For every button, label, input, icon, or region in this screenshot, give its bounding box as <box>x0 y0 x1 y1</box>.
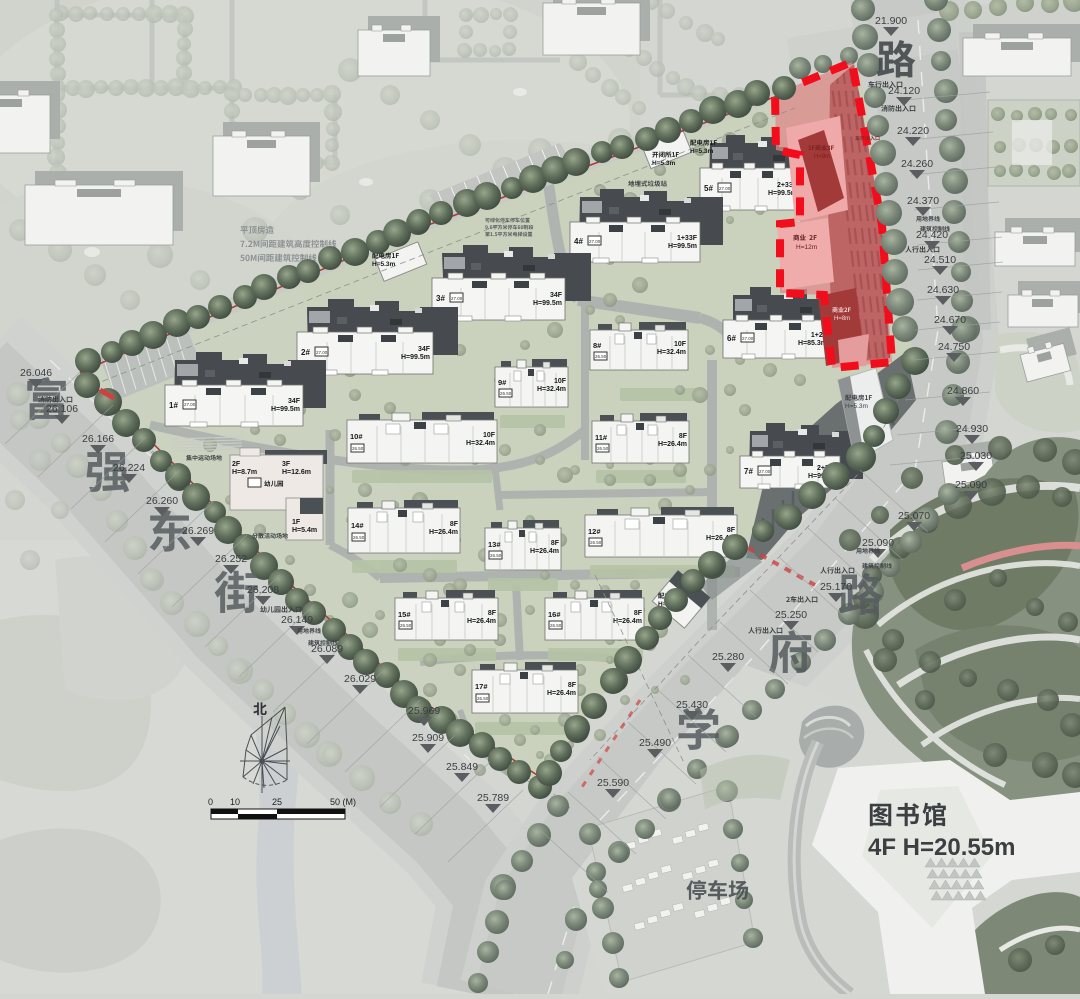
svg-text:25.090: 25.090 <box>862 537 894 549</box>
svg-text:12#: 12# <box>588 527 601 536</box>
svg-text:8#: 8# <box>593 341 602 350</box>
svg-text:25.250: 25.250 <box>775 609 807 621</box>
svg-text:4#: 4# <box>574 237 583 246</box>
svg-text:25.070: 25.070 <box>898 510 930 522</box>
svg-text:27.00: 27.00 <box>719 186 731 191</box>
svg-text:H=26.4m: H=26.4m <box>429 529 458 536</box>
svg-text:10F: 10F <box>554 378 567 385</box>
svg-text:13#: 13# <box>488 540 501 549</box>
svg-text:25.969: 25.969 <box>408 705 440 717</box>
svg-text:25.789: 25.789 <box>477 792 509 804</box>
svg-text:24.860: 24.860 <box>947 385 979 397</box>
svg-text:24.120: 24.120 <box>888 85 920 97</box>
svg-text:8F: 8F <box>551 540 560 547</box>
svg-text:25.590: 25.590 <box>597 777 629 789</box>
svg-text:24.670: 24.670 <box>934 314 966 326</box>
svg-text:26.50: 26.50 <box>400 623 412 628</box>
svg-text:6#: 6# <box>727 334 736 343</box>
svg-text:7#: 7# <box>744 467 753 476</box>
svg-text:25.430: 25.430 <box>676 699 708 711</box>
svg-text:3F: 3F <box>282 461 291 468</box>
svg-text:1#: 1# <box>169 401 178 410</box>
svg-text:24.930: 24.930 <box>956 423 988 435</box>
svg-text:25: 25 <box>272 797 282 807</box>
svg-text:8F: 8F <box>727 527 736 534</box>
svg-text:8F: 8F <box>568 682 577 689</box>
svg-text:10F: 10F <box>483 432 496 439</box>
svg-text:26.50: 26.50 <box>590 540 602 545</box>
svg-text:8F: 8F <box>450 521 459 528</box>
svg-text:16#: 16# <box>548 610 561 619</box>
svg-text:26.50: 26.50 <box>490 553 502 558</box>
svg-text:34F: 34F <box>288 398 301 405</box>
svg-text:14#: 14# <box>351 521 364 530</box>
svg-text:27.00: 27.00 <box>184 402 196 407</box>
svg-text:H=26.4m: H=26.4m <box>547 690 576 697</box>
svg-text:26.50: 26.50 <box>352 446 364 451</box>
svg-text:2#: 2# <box>301 348 310 357</box>
svg-text:H=12m: H=12m <box>796 244 817 251</box>
svg-text:H=5.3m: H=5.3m <box>652 160 676 167</box>
svg-text:H=5.3m: H=5.3m <box>690 148 714 155</box>
svg-text:26.106: 26.106 <box>46 403 78 415</box>
svg-text:9#: 9# <box>498 378 507 387</box>
svg-text:H=12.6m: H=12.6m <box>282 469 311 476</box>
svg-text:24.510: 24.510 <box>924 254 956 266</box>
svg-text:10#: 10# <box>350 432 363 441</box>
svg-text:8F: 8F <box>679 433 688 440</box>
svg-text:17#: 17# <box>475 682 488 691</box>
svg-text:H=8m: H=8m <box>834 316 850 322</box>
svg-text:26.50: 26.50 <box>500 391 512 396</box>
svg-text:26.046: 26.046 <box>20 367 52 379</box>
svg-text:24.630: 24.630 <box>927 284 959 296</box>
svg-text:24.370: 24.370 <box>907 195 939 207</box>
svg-text:26.260: 26.260 <box>146 495 178 507</box>
svg-text:34F: 34F <box>550 292 563 299</box>
svg-text:H=8.7m: H=8.7m <box>232 469 257 476</box>
svg-text:25.490: 25.490 <box>639 737 671 749</box>
svg-text:27.00: 27.00 <box>451 296 463 301</box>
svg-text:H=99.5m: H=99.5m <box>401 354 430 361</box>
svg-text:24.220: 24.220 <box>897 125 929 137</box>
svg-text:24.260: 24.260 <box>901 158 933 170</box>
svg-text:34F: 34F <box>418 346 431 353</box>
svg-text:26.50: 26.50 <box>597 446 609 451</box>
svg-text:H=32.4m: H=32.4m <box>537 386 566 393</box>
svg-text:26.252: 26.252 <box>215 553 247 565</box>
svg-text:26.269: 26.269 <box>182 525 214 537</box>
svg-text:2F: 2F <box>232 461 241 468</box>
svg-text:H=5.4m: H=5.4m <box>292 527 317 534</box>
svg-text:3#: 3# <box>436 294 445 303</box>
svg-text:26.50: 26.50 <box>550 623 562 628</box>
svg-text:H=99.5m: H=99.5m <box>533 300 562 307</box>
svg-text:H=32.4m: H=32.4m <box>657 349 686 356</box>
svg-text:26.208: 26.208 <box>247 584 279 596</box>
svg-text:10: 10 <box>230 797 240 807</box>
svg-text:27.00: 27.00 <box>316 350 328 355</box>
svg-text:26.224: 26.224 <box>113 462 145 474</box>
svg-text:1F: 1F <box>292 519 301 526</box>
svg-text:26.50: 26.50 <box>353 535 365 540</box>
svg-text:H=32.4m: H=32.4m <box>466 440 495 447</box>
svg-text:27.00: 27.00 <box>742 336 754 341</box>
svg-text:25.170: 25.170 <box>820 581 852 593</box>
svg-text:25.030: 25.030 <box>960 450 992 462</box>
svg-text:26.166: 26.166 <box>82 433 114 445</box>
svg-text:5#: 5# <box>704 184 713 193</box>
svg-text:27.00: 27.00 <box>589 239 601 244</box>
svg-text:4F H=20.55m: 4F H=20.55m <box>868 834 1015 861</box>
svg-text:H=99.5m: H=99.5m <box>271 406 300 413</box>
svg-text:24.750: 24.750 <box>938 341 970 353</box>
svg-text:H=26.4m: H=26.4m <box>658 441 687 448</box>
svg-text:27.00: 27.00 <box>759 469 771 474</box>
svg-text:25.090: 25.090 <box>955 479 987 491</box>
svg-text:25.909: 25.909 <box>412 732 444 744</box>
svg-text:10F: 10F <box>674 341 687 348</box>
svg-text:8F: 8F <box>488 610 497 617</box>
svg-text:H=5.3m: H=5.3m <box>845 403 868 410</box>
svg-text:26.029: 26.029 <box>344 673 376 685</box>
svg-text:26.50: 26.50 <box>477 696 489 701</box>
svg-text:25.280: 25.280 <box>712 651 744 663</box>
svg-text:26.089: 26.089 <box>311 643 343 655</box>
svg-text:H=26.4m: H=26.4m <box>467 618 496 625</box>
svg-text:1+33F: 1+33F <box>677 235 698 242</box>
svg-text:H=26.4m: H=26.4m <box>530 548 559 555</box>
svg-text:26.149: 26.149 <box>281 614 313 626</box>
svg-text:15#: 15# <box>398 610 411 619</box>
svg-text:H=85.3m: H=85.3m <box>798 340 827 347</box>
svg-text:8F: 8F <box>634 610 643 617</box>
svg-text:21.900: 21.900 <box>875 15 907 27</box>
svg-text:25.849: 25.849 <box>446 761 478 773</box>
svg-text:H=9m: H=9m <box>814 154 830 160</box>
svg-text:11#: 11# <box>595 433 608 442</box>
svg-text:26.50: 26.50 <box>595 354 607 359</box>
svg-text:0: 0 <box>208 797 213 807</box>
svg-text:50 (M): 50 (M) <box>330 797 356 807</box>
svg-text:H=99.5m: H=99.5m <box>668 243 697 250</box>
